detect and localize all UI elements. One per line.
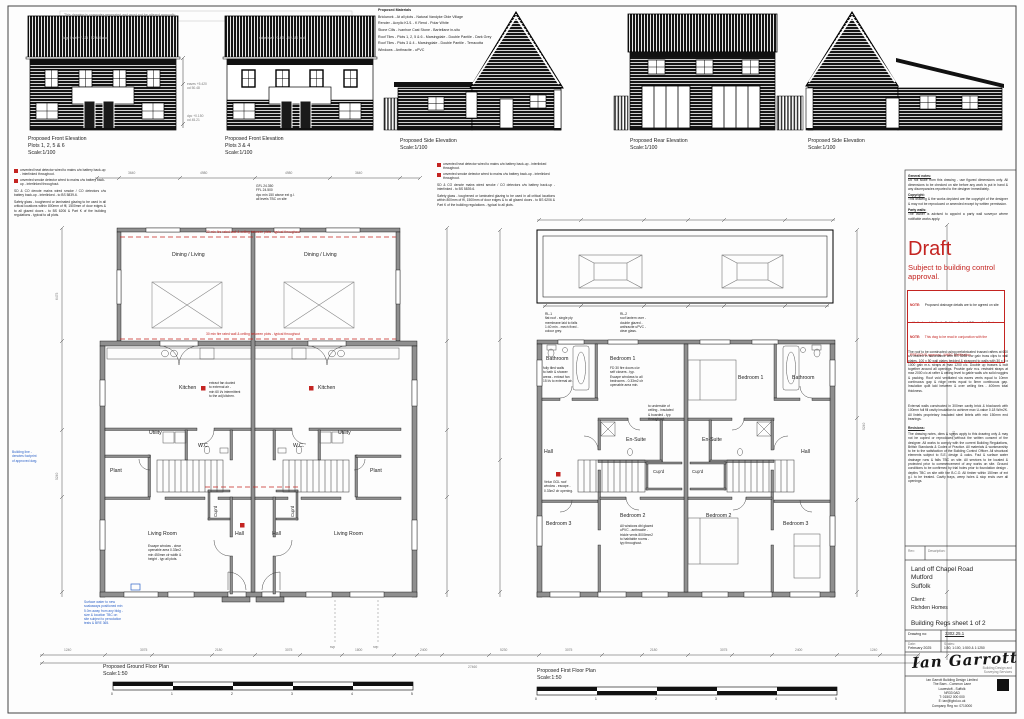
dim-value: 2400: [795, 648, 802, 652]
room-label-ensuite-left: En-Suite: [626, 437, 646, 444]
ceiling-note: to underside of ceiling - insulated & bo…: [648, 404, 673, 421]
svp-label: svp: [330, 645, 335, 649]
revision-cell-label: Description:: [928, 549, 945, 553]
elevation-scale: Scale:1/100: [808, 145, 865, 152]
revisions-heading: Revisions:: [908, 426, 925, 430]
room-label-cupd-right: Cup'd: [692, 469, 703, 475]
legend-glass-note: Safety glass - toughened or laminated gl…: [14, 200, 106, 217]
room-label-plant-left: Plant: [110, 468, 122, 475]
ridge-annotation: ridge level +7.425 - 52.480 aod: [62, 36, 108, 40]
dim-value: 2180: [215, 648, 222, 652]
dim-value: 4980: [285, 171, 292, 175]
elevation-scale: Scale:1/100: [28, 150, 87, 157]
legend-smoke-text: unvented smoke detector wired to mains c…: [443, 172, 555, 181]
rwp-label: rwp: [373, 645, 378, 649]
draft-subtitle: Subject to building control approval.: [908, 264, 1008, 281]
scalebar-number: 1: [171, 692, 173, 696]
elevation-plots: Plots 3 & 4: [225, 143, 284, 150]
dim-value: 1240: [870, 648, 877, 652]
general-spec-paragraph: The drawing notes, dims & specs apply to…: [908, 432, 1008, 483]
building-line-note: Building line - denotes footprint of app…: [12, 450, 37, 463]
smoke-detector-icon: [437, 173, 441, 177]
elevation-label-side-2: Proposed Side Elevation Scale:1/100: [808, 138, 865, 152]
notes-paragraph: The owner is advised to appoint a party …: [908, 212, 1008, 221]
elevation-label-side-1: Proposed Side Elevation Scale:1/100: [400, 138, 457, 152]
room-label-bathroom-left: Bathroom: [546, 356, 569, 363]
first-floor-plan-linework: [537, 230, 835, 597]
levels-note: GFL 24.350 FFL 24.500 dpc min 150 above …: [256, 184, 295, 201]
scalebar-number: 3: [291, 692, 293, 696]
scalebar-number: 4: [351, 692, 353, 696]
room-label-ensuite-right: En-Suite: [702, 437, 722, 444]
ridge-annotation: ridge level +7.425 - 52.480 aod: [259, 36, 305, 40]
room-label-plant-right: Plant: [370, 468, 382, 475]
scalebar-number: 0: [111, 692, 113, 696]
room-label-hall-left: Hall: [235, 531, 244, 538]
room-label-utility-left: Utility: [149, 430, 162, 437]
scalebar-number: 3: [715, 697, 717, 701]
materials-list: Proposed Materials Brickwork - At all pl…: [378, 8, 608, 53]
drawing-no-value: 3302.25.1: [945, 631, 964, 637]
revision-cell-label: Rev:: [908, 549, 915, 553]
scalebar-number: 1: [595, 697, 597, 701]
room-label-bedroom1-right: Bedroom 1: [738, 375, 763, 382]
roof-note-1: RL-1 flat roof - single ply membrane lai…: [545, 312, 579, 333]
client-label: Client:: [911, 597, 926, 604]
elevation-label-front-2: Proposed Front Elevation Plots 3 & 4 Sca…: [225, 136, 284, 157]
sheet-top-note: This drawing is computer generated and m…: [64, 13, 344, 18]
room-label-cupd-right: Cup'd: [290, 506, 296, 517]
materials-item: Stone Cills - Ivanhoe Cast Stone - Barte…: [378, 28, 608, 33]
elevation-scale: Scale:1/100: [400, 145, 457, 152]
draft-stamp: Draft: [908, 238, 951, 261]
room-label-cupd-left: Cup'd: [213, 506, 219, 517]
room-label-utility-right: Utility: [338, 430, 351, 437]
room-label-bedroom3-left: Bedroom 3: [546, 521, 571, 528]
elevation-plots: Plots 1, 2, 5 & 6: [28, 143, 87, 150]
dim-value: 4980: [200, 171, 207, 175]
company-logo: [997, 679, 1009, 691]
room-label-bedroom3-right: Bedroom 3: [783, 521, 808, 528]
legend-heat-text: unvented heat detector wired to mains c/…: [443, 162, 555, 171]
room-label-kitchen-left: Kitchen: [179, 385, 196, 392]
scalebar-number: 4: [775, 697, 777, 701]
note-label: NOTE:: [910, 303, 920, 307]
scalebar-number: 2: [231, 692, 233, 696]
velux-escape-note: Velux GGL roof window - escape - 0.33m2 …: [544, 480, 573, 493]
materials-item: Render - Acrylic K1/1 - K Rend - Polar W…: [378, 21, 608, 26]
dpc-level-annotation: dpc +0.150 od 45.21: [187, 114, 203, 123]
drawing-linework: [0, 0, 1024, 719]
elevation-scale: Scale:1/100: [225, 150, 284, 157]
room-label-bathroom-right: Bathroom: [792, 375, 815, 382]
wall-spec-paragraph: External walls constructed in 300mm cavi…: [908, 404, 1008, 421]
drawing-no-label: Drawing no:: [908, 632, 927, 637]
elevation-label-rear: Proposed Rear Elevation Scale:1/100: [630, 138, 688, 152]
first-plan-title-block: Proposed First Floor Plan Scale:1:50: [537, 668, 596, 682]
dim-value: 2400: [420, 648, 427, 652]
first-plan-scale: Scale:1:50: [537, 675, 596, 682]
elevation-title: Proposed Rear Elevation: [630, 138, 688, 145]
elevation-title: Proposed Side Elevation: [400, 138, 457, 145]
site-address: Land off Chapel Road Mutford Suffolk: [911, 566, 973, 591]
room-label-hall-right: Hall: [272, 531, 281, 538]
dim-value: 3640: [128, 171, 135, 175]
note-label: NOTE:: [910, 335, 920, 339]
notes-paragraph: This drawing & the works depicted are th…: [908, 197, 1008, 206]
room-label-bedroom2-left: Bedroom 2: [620, 513, 645, 520]
scalebar-number: 5: [835, 697, 837, 701]
room-label-living-right: Living Room: [334, 531, 363, 538]
general-notes-block: General notes: Do not scale from this dr…: [908, 174, 1008, 221]
materials-item: Roof Tiles - Plots 3 & 4 - Marsingdale -…: [378, 41, 608, 46]
dim-value: 3075: [720, 648, 727, 652]
dim-value: 9240: [862, 423, 866, 430]
room-label-cupd-left: Cup'd: [653, 469, 664, 475]
dim-value: 3075: [140, 648, 147, 652]
ground-plan-title: Proposed Ground Floor Plan: [103, 664, 169, 671]
elevation-title: Proposed Front Elevation: [28, 136, 87, 143]
soakaway-note: Surface water to new soakaways positione…: [84, 600, 123, 626]
dim-overall: 27460: [468, 665, 477, 669]
sheet-title: Building Regs sheet 1 of 2: [911, 620, 986, 628]
elevation-label-front-1: Proposed Front Elevation Plots 1, 2, 5 &…: [28, 136, 87, 157]
legend-sd-note: SD & CO denote mains wired smoke / CO de…: [437, 183, 555, 192]
room-label-kitchen-right: Kitchen: [318, 385, 335, 392]
materials-item: Brickwork - At all plots - Natural Vandy…: [378, 15, 608, 20]
legend-heat-text: unvented heat detector wired to mains c/…: [20, 168, 106, 177]
dim-value: 3075: [565, 648, 572, 652]
bathroom-note: fully tiled walls to bath & shower areas…: [543, 366, 573, 383]
room-label-hall-left: Hall: [544, 449, 553, 456]
fire-wall-note: 30 min fire rated wall & ceiling between…: [148, 332, 358, 336]
dim-value: 1800: [355, 648, 362, 652]
heat-detector-icon: [437, 163, 441, 167]
client-name: Richden Homes: [911, 605, 948, 612]
dim-value: 2180: [650, 648, 657, 652]
scalebar-number: 5: [411, 692, 413, 696]
elevation-scale: Scale:1/100: [630, 145, 688, 152]
signature-tagline: Building Design and Surveying Services: [974, 666, 1012, 675]
eaves-level-annotation: eaves +5.420 od 50.48: [187, 82, 207, 91]
room-label-dining-left: Dining / Living: [172, 252, 205, 259]
dim-value: 5230: [500, 648, 507, 652]
dimension-lines: [40, 176, 949, 665]
dim-value: 5240: [55, 473, 59, 480]
drawing-sheet: This drawing is computer generated and m…: [0, 0, 1024, 719]
ground-floor-plan-linework: [100, 228, 417, 644]
legend-sd-note: SD & CO denote mains wired smoke / CO de…: [14, 189, 106, 198]
escape-window-note: Escape window - clear openable area 0.33…: [148, 544, 183, 561]
elevation-title: Proposed Front Elevation: [225, 136, 284, 143]
first-plan-title: Proposed First Floor Plan: [537, 668, 596, 675]
company-details: Ian Garrott Building Design Limited The …: [910, 678, 994, 708]
elevation-front-1-linework: [26, 16, 185, 130]
legend-ground-floor: unvented heat detector wired to mains c/…: [14, 168, 106, 217]
legend-smoke-text: unvented smoke detector wired to mains c…: [20, 178, 106, 187]
scale-bars: [113, 682, 837, 695]
elevation-title: Proposed Side Elevation: [808, 138, 865, 145]
dim-value: 1240: [64, 648, 71, 652]
scalebar-number: 0: [535, 697, 537, 701]
elevation-front-2-linework: [223, 16, 377, 130]
legend-glass-note: Safety glass - toughened or laminated gl…: [437, 194, 555, 207]
kitchen-extract-note: extract fan ducted to external air - min…: [209, 381, 240, 398]
room-label-living-left: Living Room: [148, 531, 177, 538]
scalebar-number: 2: [655, 697, 657, 701]
dim-value: 3640: [355, 171, 362, 175]
room-label-dining-right: Dining / Living: [304, 252, 337, 259]
dim-value: 3075: [285, 648, 292, 652]
bedroom1-note: FD 30 fire doors c/w self closers - typ.…: [610, 366, 643, 387]
ground-plan-title-block: Proposed Ground Floor Plan Scale:1:50: [103, 664, 169, 678]
fire-wall-note: 30 min fire rated wall & ceiling between…: [148, 230, 358, 234]
roof-spec-paragraph: The roof to be constructed using prefabr…: [908, 350, 1008, 393]
date-value: February 2025: [908, 646, 931, 651]
materials-title: Proposed Materials: [378, 8, 608, 13]
room-label-bedroom2-right: Bedroom 2: [706, 513, 731, 520]
ground-plan-scale: Scale:1:50: [103, 671, 169, 678]
legend-first-floor: unvented heat detector wired to mains c/…: [437, 162, 555, 207]
heat-detector-icon: [14, 169, 18, 173]
room-label-wc-left: W.C.: [198, 443, 209, 450]
room-label-hall-right: Hall: [801, 449, 810, 456]
bedroom2-note: All windows dbl glazed uPVC - anthracite…: [620, 524, 653, 545]
elevation-rear-linework: [614, 14, 791, 130]
roof-note-2: RL-2 roof lantern over - double glazed -…: [620, 312, 646, 333]
materials-item: Roof Tiles - Plots 1, 2, 5 & 6 - Marsing…: [378, 35, 608, 40]
elevation-side-2-linework: [791, 12, 1004, 130]
room-label-wc-right: W.C.: [293, 443, 304, 450]
notes-paragraph: Do not scale from this drawing - use fig…: [908, 178, 1008, 191]
room-label-bedroom1-left: Bedroom 1: [610, 356, 635, 363]
materials-item: Windows - Anthracite - uPVC: [378, 48, 608, 53]
dim-value: 6475: [55, 293, 59, 300]
smoke-detector-icon: [14, 179, 18, 183]
